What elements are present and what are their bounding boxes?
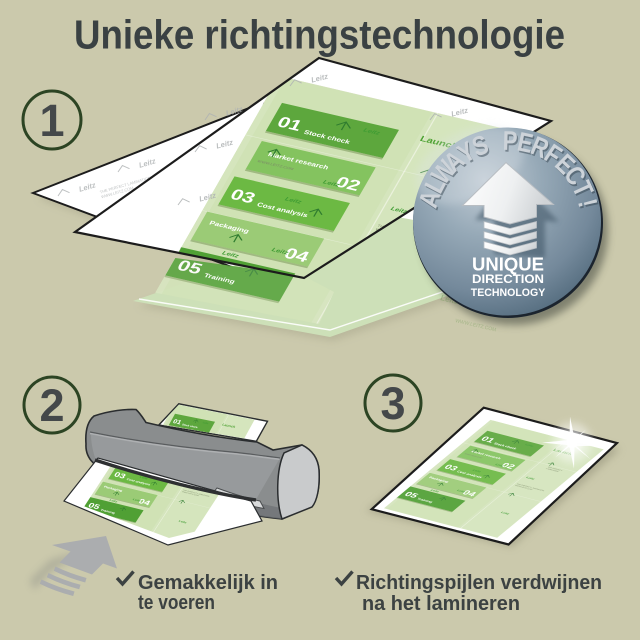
svg-text:na het lamineren: na het lamineren (362, 593, 520, 615)
svg-text:DIRECTION: DIRECTION (472, 272, 544, 286)
svg-text:Unieke richtingstechnologie: Unieke richtingstechnologie (74, 12, 565, 58)
svg-text:Gemakkelijk in: Gemakkelijk in (138, 572, 278, 594)
svg-text:Richtingspijlen verdwijnen: Richtingspijlen verdwijnen (356, 572, 602, 594)
svg-text:TECHNOLOGY: TECHNOLOGY (471, 287, 546, 299)
svg-text:te voeren: te voeren (138, 592, 215, 614)
svg-text:2: 2 (39, 380, 64, 431)
svg-text:1: 1 (39, 95, 64, 146)
svg-text:3: 3 (380, 378, 405, 429)
